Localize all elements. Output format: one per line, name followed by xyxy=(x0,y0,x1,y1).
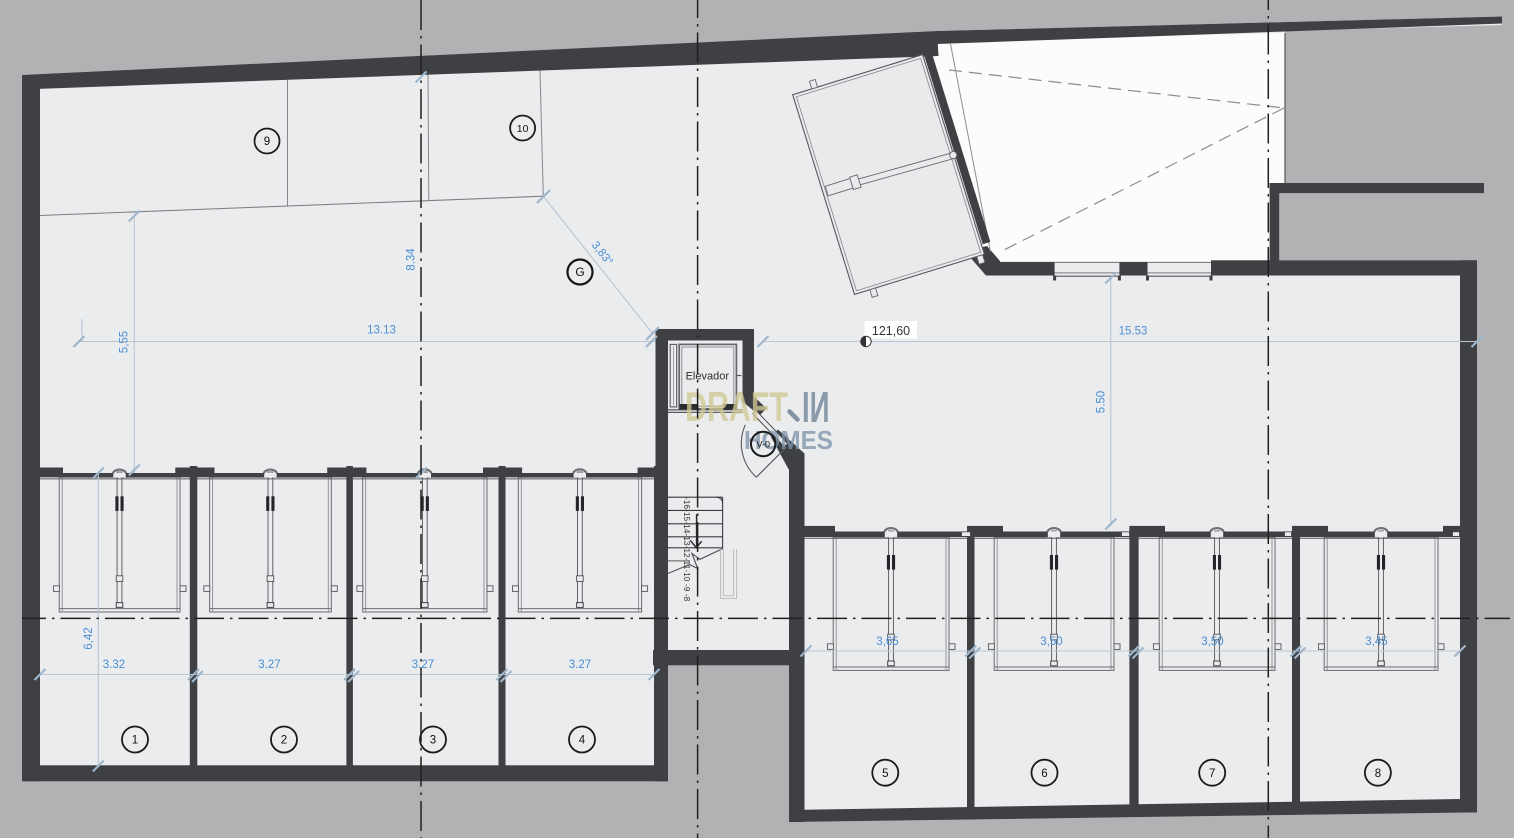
svg-text:3.27: 3.27 xyxy=(569,659,591,671)
svg-text:15.53: 15.53 xyxy=(1119,326,1148,338)
svg-text:3,45: 3,45 xyxy=(1365,636,1387,648)
svg-text:3,50: 3,50 xyxy=(1040,636,1062,648)
svg-text:4: 4 xyxy=(579,735,586,747)
svg-text:7: 7 xyxy=(1209,768,1215,780)
svg-text:10: 10 xyxy=(517,123,529,135)
svg-text:G: G xyxy=(575,265,584,279)
svg-text:6: 6 xyxy=(1041,768,1047,780)
svg-text:3,50: 3,50 xyxy=(1201,636,1223,648)
svg-text:8.34: 8.34 xyxy=(406,248,418,271)
svg-text:9: 9 xyxy=(264,136,270,148)
svg-text:3,65: 3,65 xyxy=(876,636,898,648)
svg-text:5: 5 xyxy=(882,768,888,780)
svg-text:8: 8 xyxy=(1375,768,1381,780)
svg-text:3: 3 xyxy=(430,735,436,747)
svg-text:3.27: 3.27 xyxy=(258,659,280,671)
svg-text:3.32: 3.32 xyxy=(103,659,125,671)
svg-text:5.50: 5.50 xyxy=(1096,391,1108,413)
svg-text:2: 2 xyxy=(281,735,287,747)
svg-text:1: 1 xyxy=(132,735,138,747)
svg-text:V-0: V-0 xyxy=(756,440,770,450)
svg-text:13.13: 13.13 xyxy=(367,325,396,337)
svg-text:3.27: 3.27 xyxy=(412,659,434,671)
svg-text:121,60: 121,60 xyxy=(872,324,910,338)
svg-text:DRAFT: DRAFT xyxy=(685,383,788,430)
svg-text:-16-15-14-13-12-11-10 -9 -8: -16-15-14-13-12-11-10 -9 -8 xyxy=(682,497,691,602)
svg-text:5,55: 5,55 xyxy=(119,331,131,353)
svg-text:Elevador: Elevador xyxy=(686,371,730,383)
svg-text:6,42: 6,42 xyxy=(83,627,95,649)
